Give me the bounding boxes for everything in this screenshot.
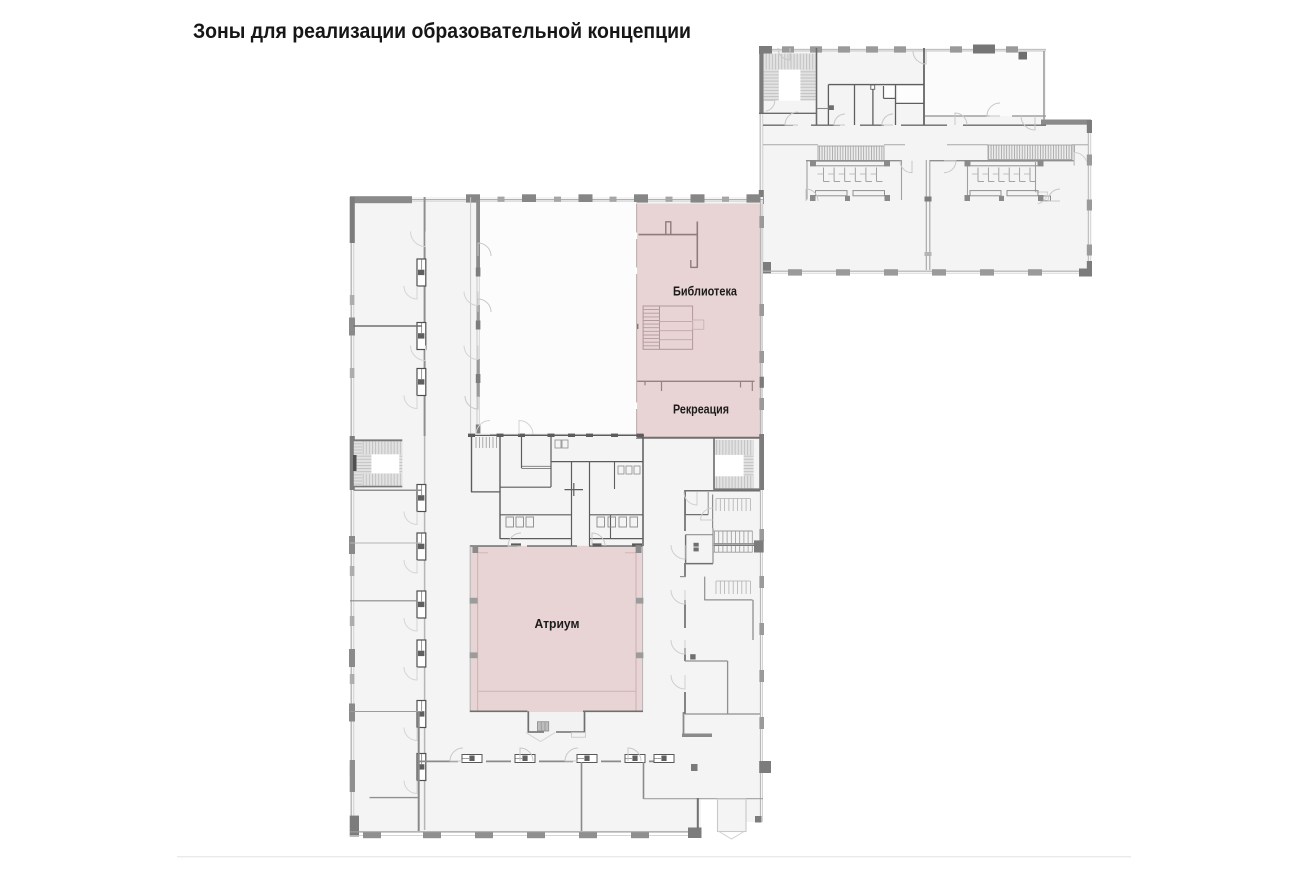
svg-text:Библиотека: Библиотека <box>673 284 738 298</box>
svg-text:Атриум: Атриум <box>535 617 580 631</box>
svg-text:Зоны для реализации образовате: Зоны для реализации образовательной конц… <box>193 20 691 43</box>
svg-text:Рекреация: Рекреация <box>673 402 729 416</box>
